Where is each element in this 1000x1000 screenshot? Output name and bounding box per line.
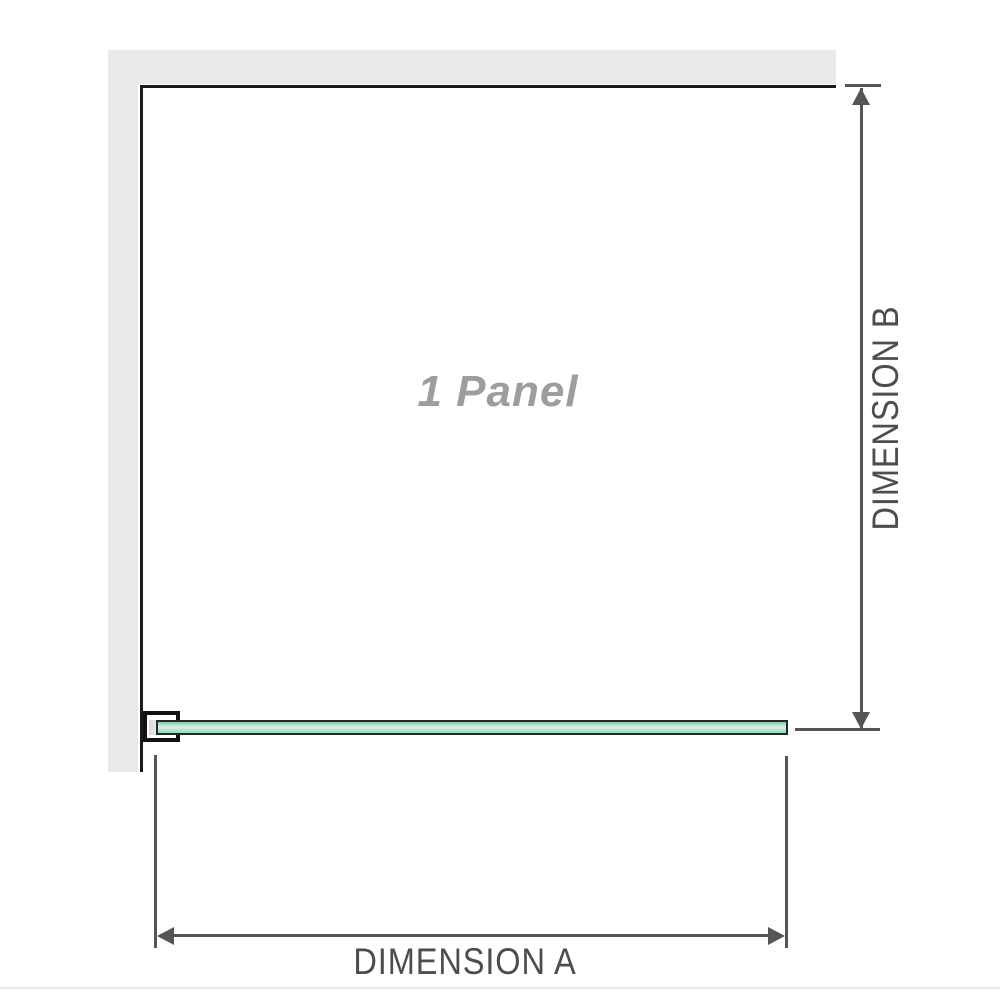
panel-outline-left [140, 85, 143, 772]
wall-top [108, 50, 836, 84]
arrow-right-icon [768, 927, 785, 945]
wall-left [108, 50, 138, 772]
page-edge-line [0, 987, 1000, 989]
panel-count-watermark: 1 Panel [348, 366, 648, 418]
shower-panel-diagram: 1 Panel DIMENSION B DIMENSION A [0, 0, 1000, 1000]
arrow-up-icon [852, 88, 870, 105]
glass-panel [156, 720, 788, 735]
dimension-a-line [160, 934, 782, 937]
dimension-a-left-extension [154, 755, 157, 948]
arrow-down-icon [852, 712, 870, 729]
dimension-b-line [860, 88, 863, 729]
dimension-b-bottom-tick [795, 728, 880, 731]
panel-outline-top [140, 85, 836, 88]
dimension-b-top-tick [845, 84, 881, 87]
arrow-left-icon [157, 927, 174, 945]
dimension-b-label: DIMENSION B [870, 286, 902, 550]
dimension-a-label: DIMENSION A [333, 944, 597, 980]
dimension-a-right-extension [785, 756, 788, 948]
